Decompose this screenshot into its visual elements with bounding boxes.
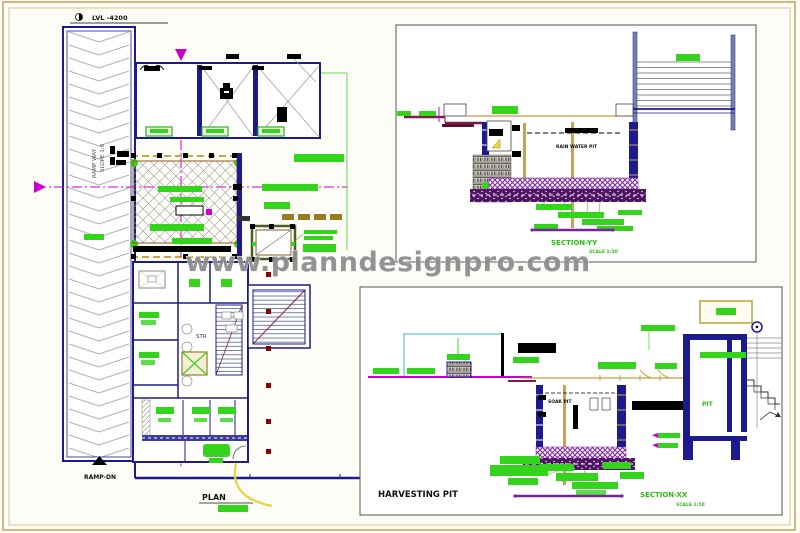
stair-label: STR [196,334,207,340]
section-yy-panel: RAIN WATER PIT SECTION-YY [396,25,756,262]
car-symbol [203,444,230,457]
plan-pit-area [250,154,344,262]
turning-curve [235,463,272,506]
section-xx-title: SECTION-XX [640,491,688,499]
section-xx-panel: SOAK PIT [360,287,782,515]
cad-sheet: LVL -4200 RAMP WAY SLOPE 1:8 RAMP-DN [0,0,800,533]
ramp-text-2: SLOPE 1:8 [100,143,106,172]
panel-heading: HARVESTING PIT [378,490,458,500]
ramp-text-1: RAMP WAY [92,148,98,178]
section-arrow-left-icon [34,181,46,193]
drain-line [282,214,342,220]
section-yy-title: SECTION-YY [551,239,598,247]
room-label: PIT [702,401,714,408]
ramp-dn-label: RAMP-DN [84,474,116,481]
shaft [182,352,207,375]
courtyard [130,153,250,260]
plan-lower-rooms: STR [133,262,310,463]
section-arrow-top-icon [175,49,187,61]
section-yy-scale: SCALE 1:50 [589,249,618,255]
pit-label: SOAK PIT [548,399,572,405]
svg-text:PLAN: PLAN [202,493,226,502]
room-label-boxes [146,127,284,136]
catch-basin [447,362,471,377]
watermark: www.planndesignpro.com [185,247,590,278]
pit-label: RAIN WATER PIT [556,144,598,150]
ramp: RAMP WAY SLOPE 1:8 [63,27,135,465]
level-label: LVL -4200 [92,14,128,22]
drawing-canvas: LVL -4200 RAMP WAY SLOPE 1:8 RAMP-DN [0,0,800,533]
section-xx-scale: SCALE 1:50 [676,502,705,508]
